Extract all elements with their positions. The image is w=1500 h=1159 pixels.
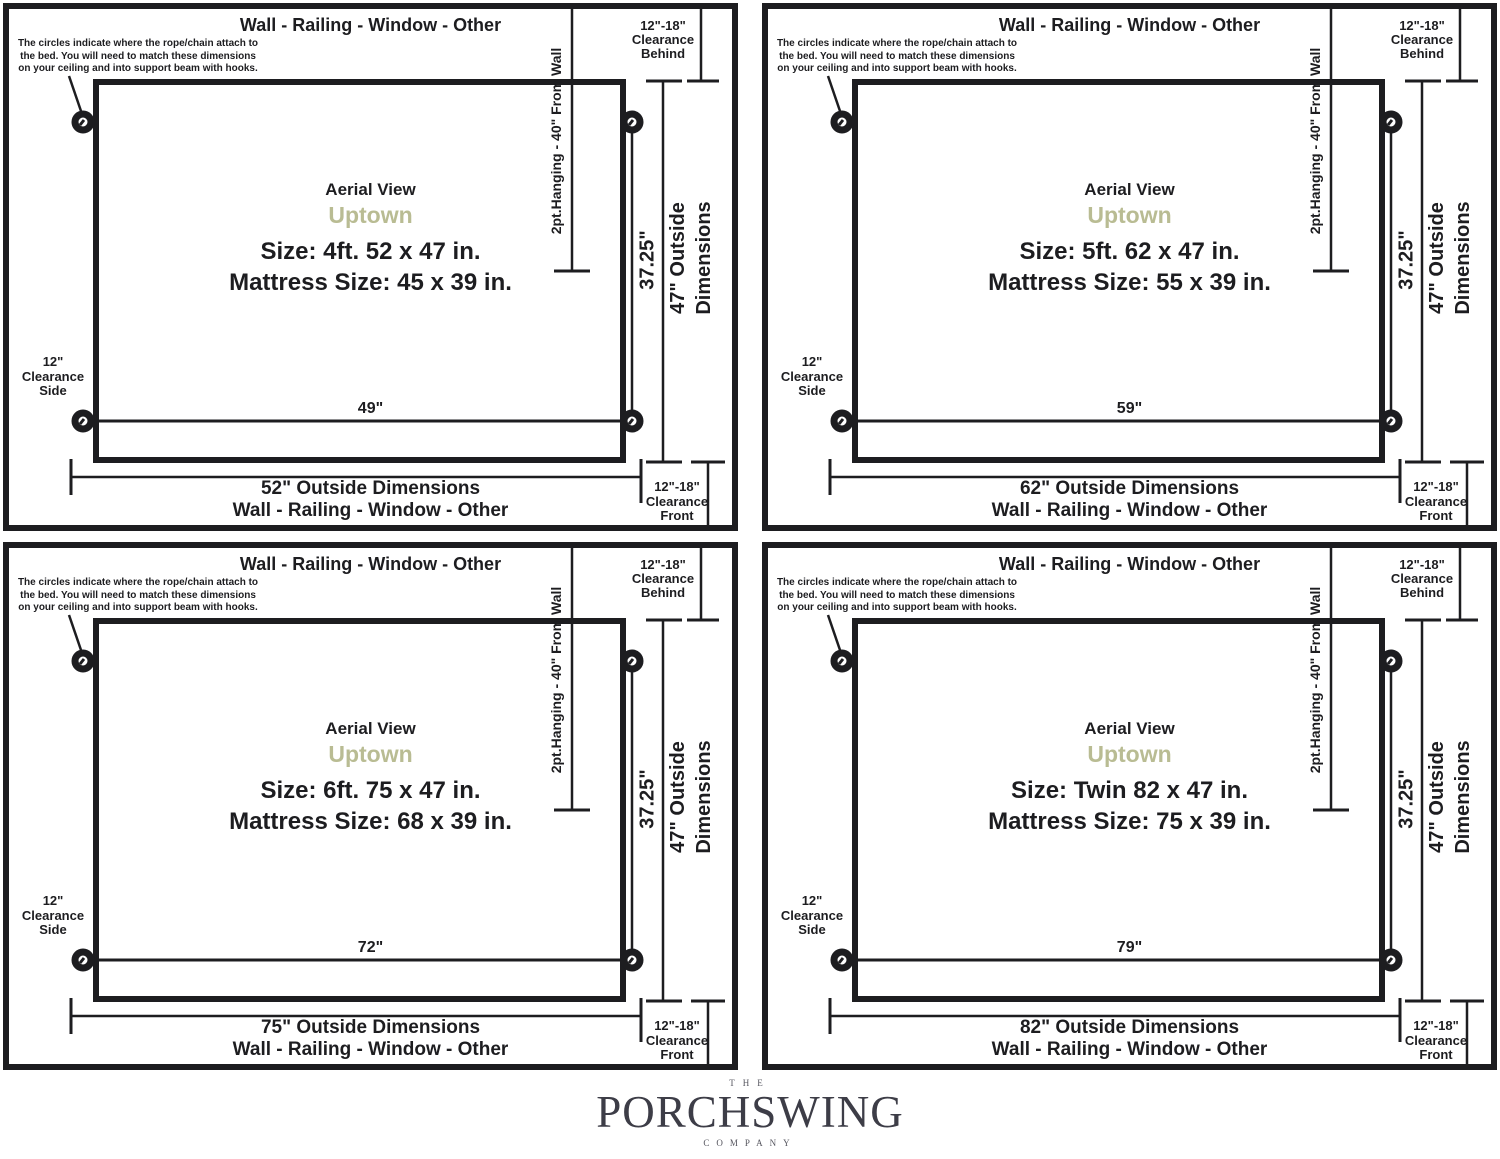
model-name: Uptown (3, 741, 738, 768)
hanging-dimension-label: 2pt.Hanging - 40" From Wall (1307, 587, 1323, 774)
bed-info: Aerial View Uptown Size: Twin 82 x 47 in… (762, 718, 1497, 837)
wall-label-bottom: Wall - Railing - Window - Other (762, 1039, 1497, 1061)
wall-label-bottom: Wall - Railing - Window - Other (762, 500, 1497, 522)
outside-width-label: 62" Outside Dimensions (762, 478, 1497, 500)
logo-company: COMPANY (0, 1138, 1500, 1148)
clearance-front-label: 12"-18" Clearance Front (1390, 1019, 1482, 1063)
brand-logo: THE PORCHSWING COMPANY (0, 1078, 1500, 1148)
note-pointer-line (69, 615, 82, 653)
aerial-view-label: Aerial View (3, 179, 738, 200)
wall-label-bottom: Wall - Railing - Window - Other (3, 1039, 738, 1061)
depth-dimension-label: 37.25" (637, 230, 660, 290)
attachment-ring (624, 653, 640, 669)
clearance-behind-label: 12"-18" Clearance Behind (1375, 19, 1469, 61)
clearance-behind-label: 12"-18" Clearance Behind (1375, 558, 1469, 600)
mattress-size-label: Mattress Size: 45 x 39 in. (3, 267, 738, 298)
hanging-dimension-label: 2pt.Hanging - 40" From Wall (548, 587, 564, 774)
note-pointer-line (828, 615, 841, 653)
attachment-note: The circles indicate where the rope/chai… (766, 38, 1028, 76)
note-pointer-line (828, 76, 841, 114)
attachment-ring (834, 114, 850, 130)
attachment-note: The circles indicate where the rope/chai… (7, 577, 269, 615)
outside-depth-label: 47" Outside Dimensions (1424, 740, 1476, 853)
attachment-ring (1383, 653, 1399, 669)
mattress-size-label: Mattress Size: 55 x 39 in. (762, 267, 1497, 298)
outside-depth-label: 47" Outside Dimensions (1424, 201, 1476, 314)
model-name: Uptown (3, 202, 738, 229)
mattress-size-label: Mattress Size: 75 x 39 in. (762, 806, 1497, 837)
model-name: Uptown (762, 741, 1497, 768)
hanging-dimension-label: 2pt.Hanging - 40" From Wall (548, 48, 564, 235)
attachment-note: The circles indicate where the rope/chai… (7, 38, 269, 76)
clearance-behind-label: 12"-18" Clearance Behind (616, 558, 710, 600)
clearance-behind-label: 12"-18" Clearance Behind (616, 19, 710, 61)
inner-width-label: 59" (762, 400, 1497, 418)
panel-4ft: Wall - Railing - Window - Other The circ… (3, 3, 738, 531)
bed-info: Aerial View Uptown Size: 5ft. 62 x 47 in… (762, 179, 1497, 298)
attachment-ring (834, 653, 850, 669)
attachment-ring (75, 114, 91, 130)
note-pointer-line (69, 76, 82, 114)
aerial-view-label: Aerial View (3, 718, 738, 739)
size-label: Size: 6ft. 75 x 47 in. (3, 775, 738, 806)
mattress-size-label: Mattress Size: 68 x 39 in. (3, 806, 738, 837)
wall-label-bottom: Wall - Railing - Window - Other (3, 500, 738, 522)
panel-5ft: Wall - Railing - Window - Other The circ… (762, 3, 1497, 531)
inner-width-label: 49" (3, 400, 738, 418)
attachment-ring (75, 653, 91, 669)
bed-info: Aerial View Uptown Size: 6ft. 75 x 47 in… (3, 718, 738, 837)
aerial-view-label: Aerial View (762, 718, 1497, 739)
outside-width-label: 52" Outside Dimensions (3, 478, 738, 500)
bed-info: Aerial View Uptown Size: 4ft. 52 x 47 in… (3, 179, 738, 298)
outside-depth-label: 47" Outside Dimensions (665, 201, 717, 314)
outside-width-label: 82" Outside Dimensions (762, 1017, 1497, 1039)
size-label: Size: 5ft. 62 x 47 in. (762, 236, 1497, 267)
model-name: Uptown (762, 202, 1497, 229)
clearance-side-label: 12" Clearance Side (7, 894, 99, 938)
inner-width-label: 72" (3, 939, 738, 957)
attachment-ring (624, 114, 640, 130)
depth-dimension-label: 37.25" (1396, 769, 1419, 829)
clearance-front-label: 12"-18" Clearance Front (631, 1019, 723, 1063)
clearance-side-label: 12" Clearance Side (7, 355, 99, 399)
size-label: Size: Twin 82 x 47 in. (762, 775, 1497, 806)
attachment-ring (1383, 114, 1399, 130)
aerial-view-label: Aerial View (762, 179, 1497, 200)
attachment-note: The circles indicate where the rope/chai… (766, 577, 1028, 615)
outside-width-label: 75" Outside Dimensions (3, 1017, 738, 1039)
panel-6ft: Wall - Railing - Window - Other The circ… (3, 542, 738, 1070)
size-label: Size: 4ft. 52 x 47 in. (3, 236, 738, 267)
dimension-sheet: { "shared": { "wall_label": "Wall - Rail… (0, 0, 1500, 1159)
depth-dimension-label: 37.25" (1396, 230, 1419, 290)
panel-twin: Wall - Railing - Window - Other The circ… (762, 542, 1497, 1070)
clearance-side-label: 12" Clearance Side (766, 894, 858, 938)
hanging-dimension-label: 2pt.Hanging - 40" From Wall (1307, 48, 1323, 235)
outside-depth-label: 47" Outside Dimensions (665, 740, 717, 853)
clearance-side-label: 12" Clearance Side (766, 355, 858, 399)
depth-dimension-label: 37.25" (637, 769, 660, 829)
inner-width-label: 79" (762, 939, 1497, 957)
clearance-front-label: 12"-18" Clearance Front (1390, 480, 1482, 524)
clearance-front-label: 12"-18" Clearance Front (631, 480, 723, 524)
logo-name: PORCHSWING (0, 1090, 1500, 1135)
